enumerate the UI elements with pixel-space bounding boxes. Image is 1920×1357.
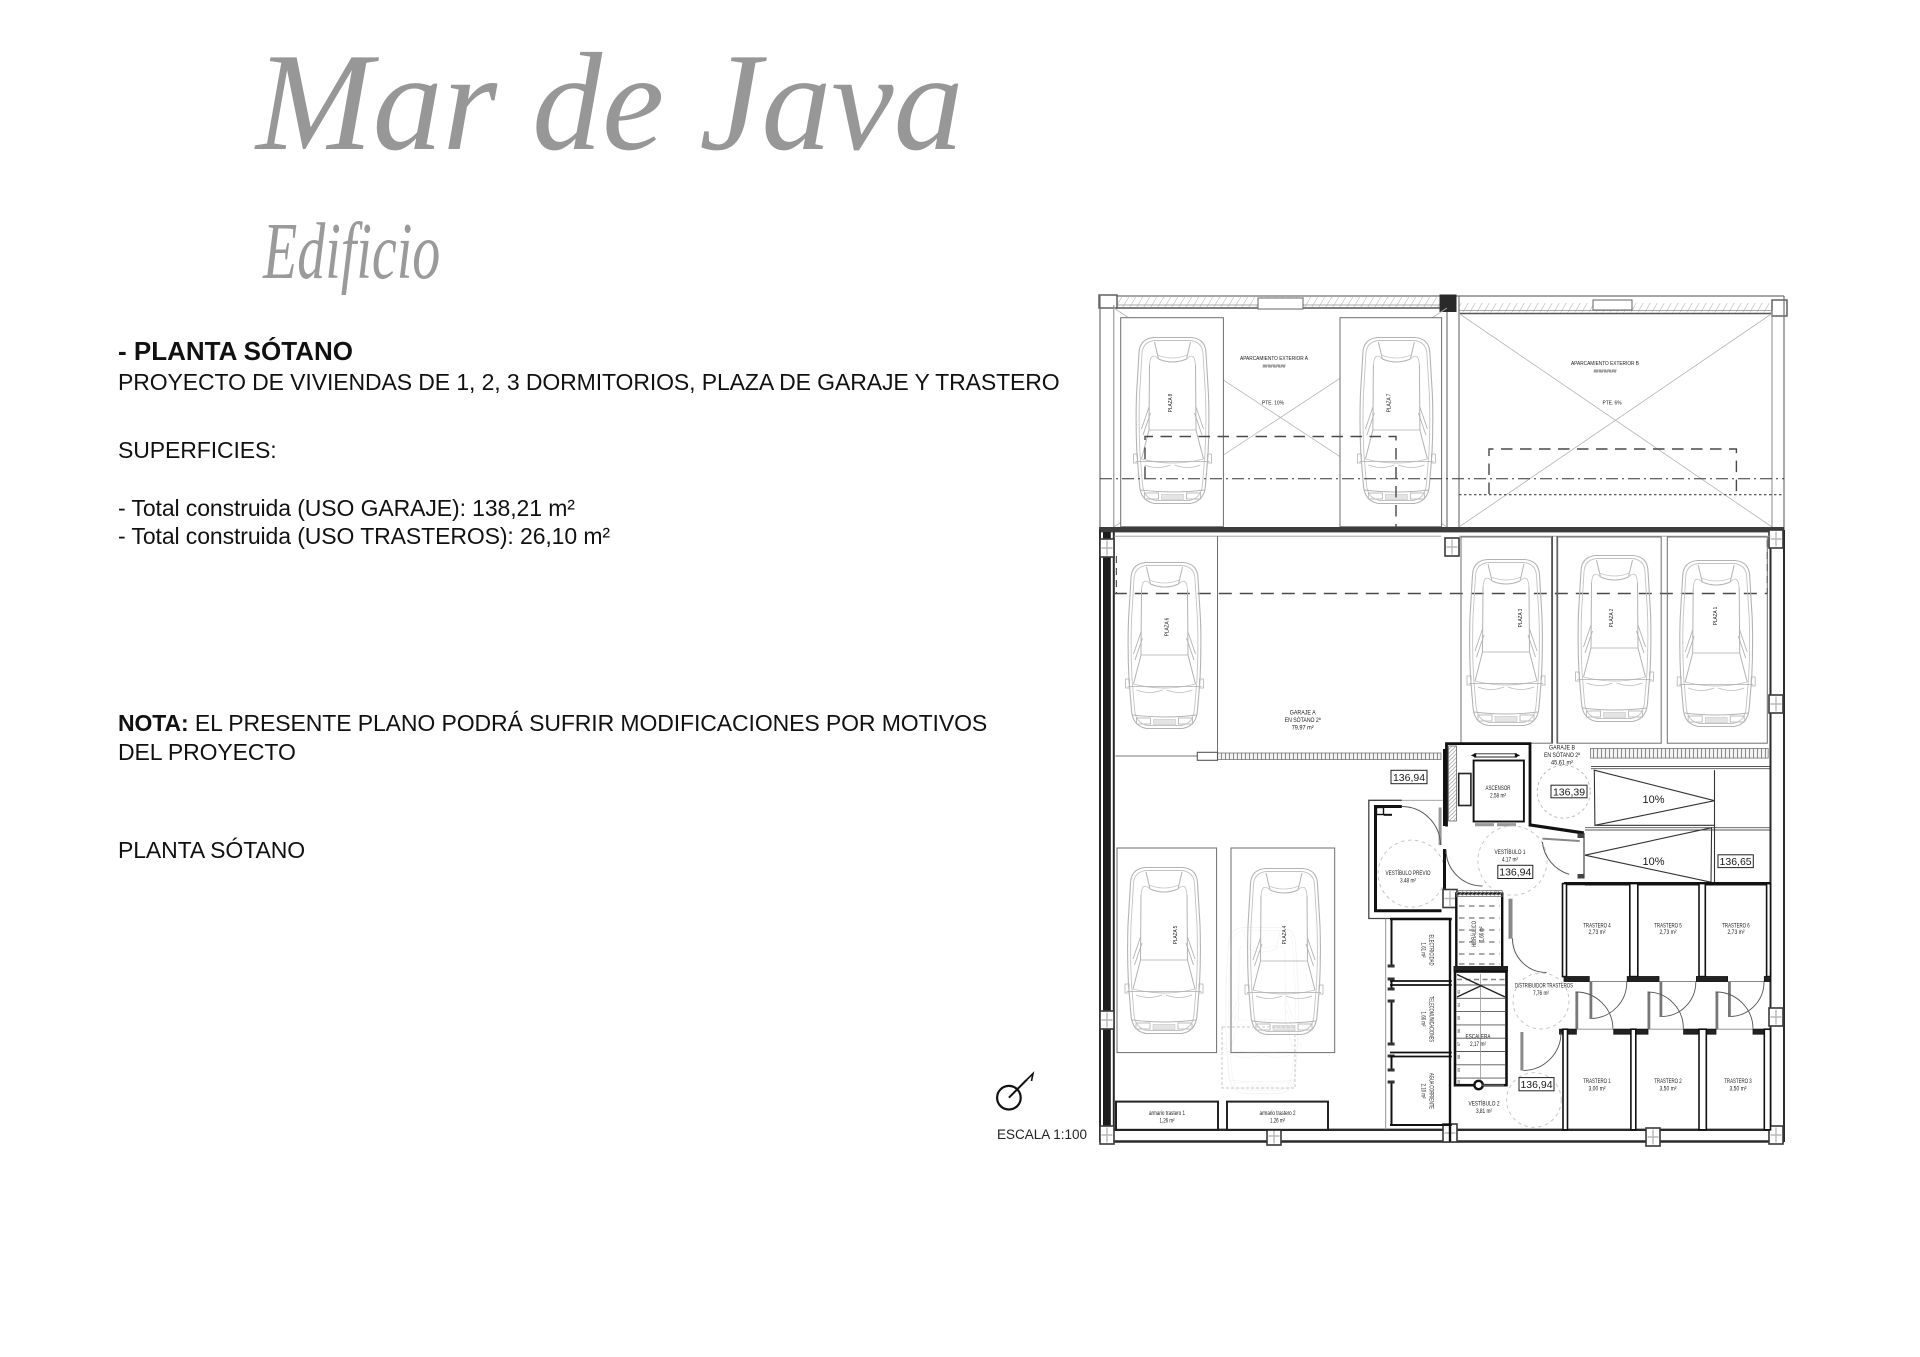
svg-text:PLAZA 1: PLAZA 1 bbox=[1713, 607, 1719, 626]
svg-text:VESTÍBULO 1: VESTÍBULO 1 bbox=[1495, 849, 1526, 856]
svg-text:4.17 m²: 4.17 m² bbox=[1502, 857, 1518, 864]
svg-text:10%: 10% bbox=[1642, 794, 1664, 806]
svg-text:APARCAMIENTO EXTERIOR B: APARCAMIENTO EXTERIOR B bbox=[1571, 361, 1639, 367]
svg-text:2,17 m²: 2,17 m² bbox=[1470, 1041, 1486, 1048]
svg-text:1,66 m²: 1,66 m² bbox=[1480, 927, 1486, 942]
svg-text:APARCAMIENTO EXTERIOR A: APARCAMIENTO EXTERIOR A bbox=[1240, 356, 1308, 362]
svg-text:VESTÍBULO PREVIO: VESTÍBULO PREVIO bbox=[1386, 870, 1431, 877]
svg-text:GARAJE A: GARAJE A bbox=[1290, 710, 1317, 717]
svg-text:3,81 m²: 3,81 m² bbox=[1476, 1108, 1492, 1115]
svg-text:#########: ######### bbox=[1594, 369, 1617, 375]
svg-text:AGUA CORRIENTE: AGUA CORRIENTE bbox=[1428, 1073, 1434, 1109]
svg-text:EN SÓTANO 2ª: EN SÓTANO 2ª bbox=[1544, 752, 1581, 759]
svg-text:03: 03 bbox=[1457, 990, 1461, 994]
svg-text:ESCALERA: ESCALERA bbox=[1466, 1034, 1492, 1041]
svg-text:2,73 m²: 2,73 m² bbox=[1660, 929, 1677, 936]
svg-text:TRASTERO 1: TRASTERO 1 bbox=[1583, 1078, 1611, 1085]
svg-text:#########: ######### bbox=[1263, 364, 1286, 370]
svg-text:ASCENSOR: ASCENSOR bbox=[1486, 785, 1511, 792]
svg-text:2.10 m²: 2.10 m² bbox=[1420, 1084, 1426, 1099]
svg-text:136,94: 136,94 bbox=[1520, 1079, 1552, 1091]
svg-text:TRASTERO 3: TRASTERO 3 bbox=[1724, 1078, 1752, 1085]
svg-text:05: 05 bbox=[1457, 1016, 1461, 1020]
svg-text:PLAZA 2: PLAZA 2 bbox=[1609, 609, 1615, 628]
svg-text:PTE. 10%: PTE. 10% bbox=[1262, 401, 1284, 407]
svg-text:armario trastero 2: armario trastero 2 bbox=[1260, 1111, 1296, 1117]
svg-text:PLAZA 7: PLAZA 7 bbox=[1387, 394, 1393, 413]
svg-text:PLAZA 6: PLAZA 6 bbox=[1165, 618, 1171, 637]
svg-text:3,00 m²: 3,00 m² bbox=[1589, 1086, 1606, 1093]
svg-text:3.48 m²: 3.48 m² bbox=[1400, 878, 1416, 885]
svg-text:ELECTRICIDAD: ELECTRICIDAD bbox=[1428, 935, 1434, 966]
svg-text:06: 06 bbox=[1457, 1029, 1461, 1033]
svg-text:2.58 m²: 2.58 m² bbox=[1490, 793, 1506, 800]
svg-text:EN SÓTANO 2ª: EN SÓTANO 2ª bbox=[1285, 717, 1322, 724]
svg-text:1.66 m²: 1.66 m² bbox=[1420, 1012, 1426, 1027]
svg-text:136,65: 136,65 bbox=[1720, 856, 1752, 868]
svg-text:PTE. 6%: PTE. 6% bbox=[1603, 401, 1622, 407]
svg-text:VESTÍBULO 2: VESTÍBULO 2 bbox=[1469, 1101, 1500, 1108]
svg-text:1.61 m²: 1.61 m² bbox=[1420, 943, 1426, 958]
svg-text:TELECOMUNICACIONES: TELECOMUNICACIONES bbox=[1428, 996, 1434, 1042]
svg-text:PLAZA 8: PLAZA 8 bbox=[1168, 394, 1174, 413]
svg-text:07: 07 bbox=[1457, 1042, 1461, 1046]
svg-text:GARAJE B: GARAJE B bbox=[1549, 745, 1575, 752]
svg-text:2,73 m²: 2,73 m² bbox=[1728, 929, 1745, 936]
svg-text:136,94: 136,94 bbox=[1499, 867, 1531, 879]
svg-text:136,39: 136,39 bbox=[1553, 786, 1585, 798]
svg-text:09: 09 bbox=[1457, 1068, 1461, 1072]
svg-text:1,26 m²: 1,26 m² bbox=[1160, 1119, 1175, 1125]
svg-text:136,94: 136,94 bbox=[1393, 772, 1425, 784]
svg-text:2,73 m²: 2,73 m² bbox=[1589, 929, 1606, 936]
svg-text:HIDRÁULICO: HIDRÁULICO bbox=[1471, 921, 1478, 947]
svg-text:1,26 m²: 1,26 m² bbox=[1270, 1119, 1285, 1125]
svg-text:PLAZA 5: PLAZA 5 bbox=[1173, 926, 1179, 945]
svg-text:armario trastero 1: armario trastero 1 bbox=[1149, 1111, 1185, 1117]
svg-text:10: 10 bbox=[1457, 1080, 1461, 1084]
svg-text:79,97 m²: 79,97 m² bbox=[1292, 725, 1314, 732]
svg-text:10%: 10% bbox=[1642, 856, 1664, 868]
svg-text:DISTRIBUIDOR TRASTEROS: DISTRIBUIDOR TRASTEROS bbox=[1515, 983, 1573, 990]
svg-text:7,76 m²: 7,76 m² bbox=[1533, 990, 1549, 997]
svg-text:TRASTERO 2: TRASTERO 2 bbox=[1654, 1078, 1682, 1085]
svg-text:08: 08 bbox=[1457, 1055, 1461, 1059]
svg-text:04: 04 bbox=[1457, 1003, 1461, 1007]
svg-text:3,50 m²: 3,50 m² bbox=[1660, 1086, 1677, 1093]
svg-text:PLAZA 3: PLAZA 3 bbox=[1518, 609, 1524, 628]
svg-text:3,50 m²: 3,50 m² bbox=[1730, 1086, 1747, 1093]
